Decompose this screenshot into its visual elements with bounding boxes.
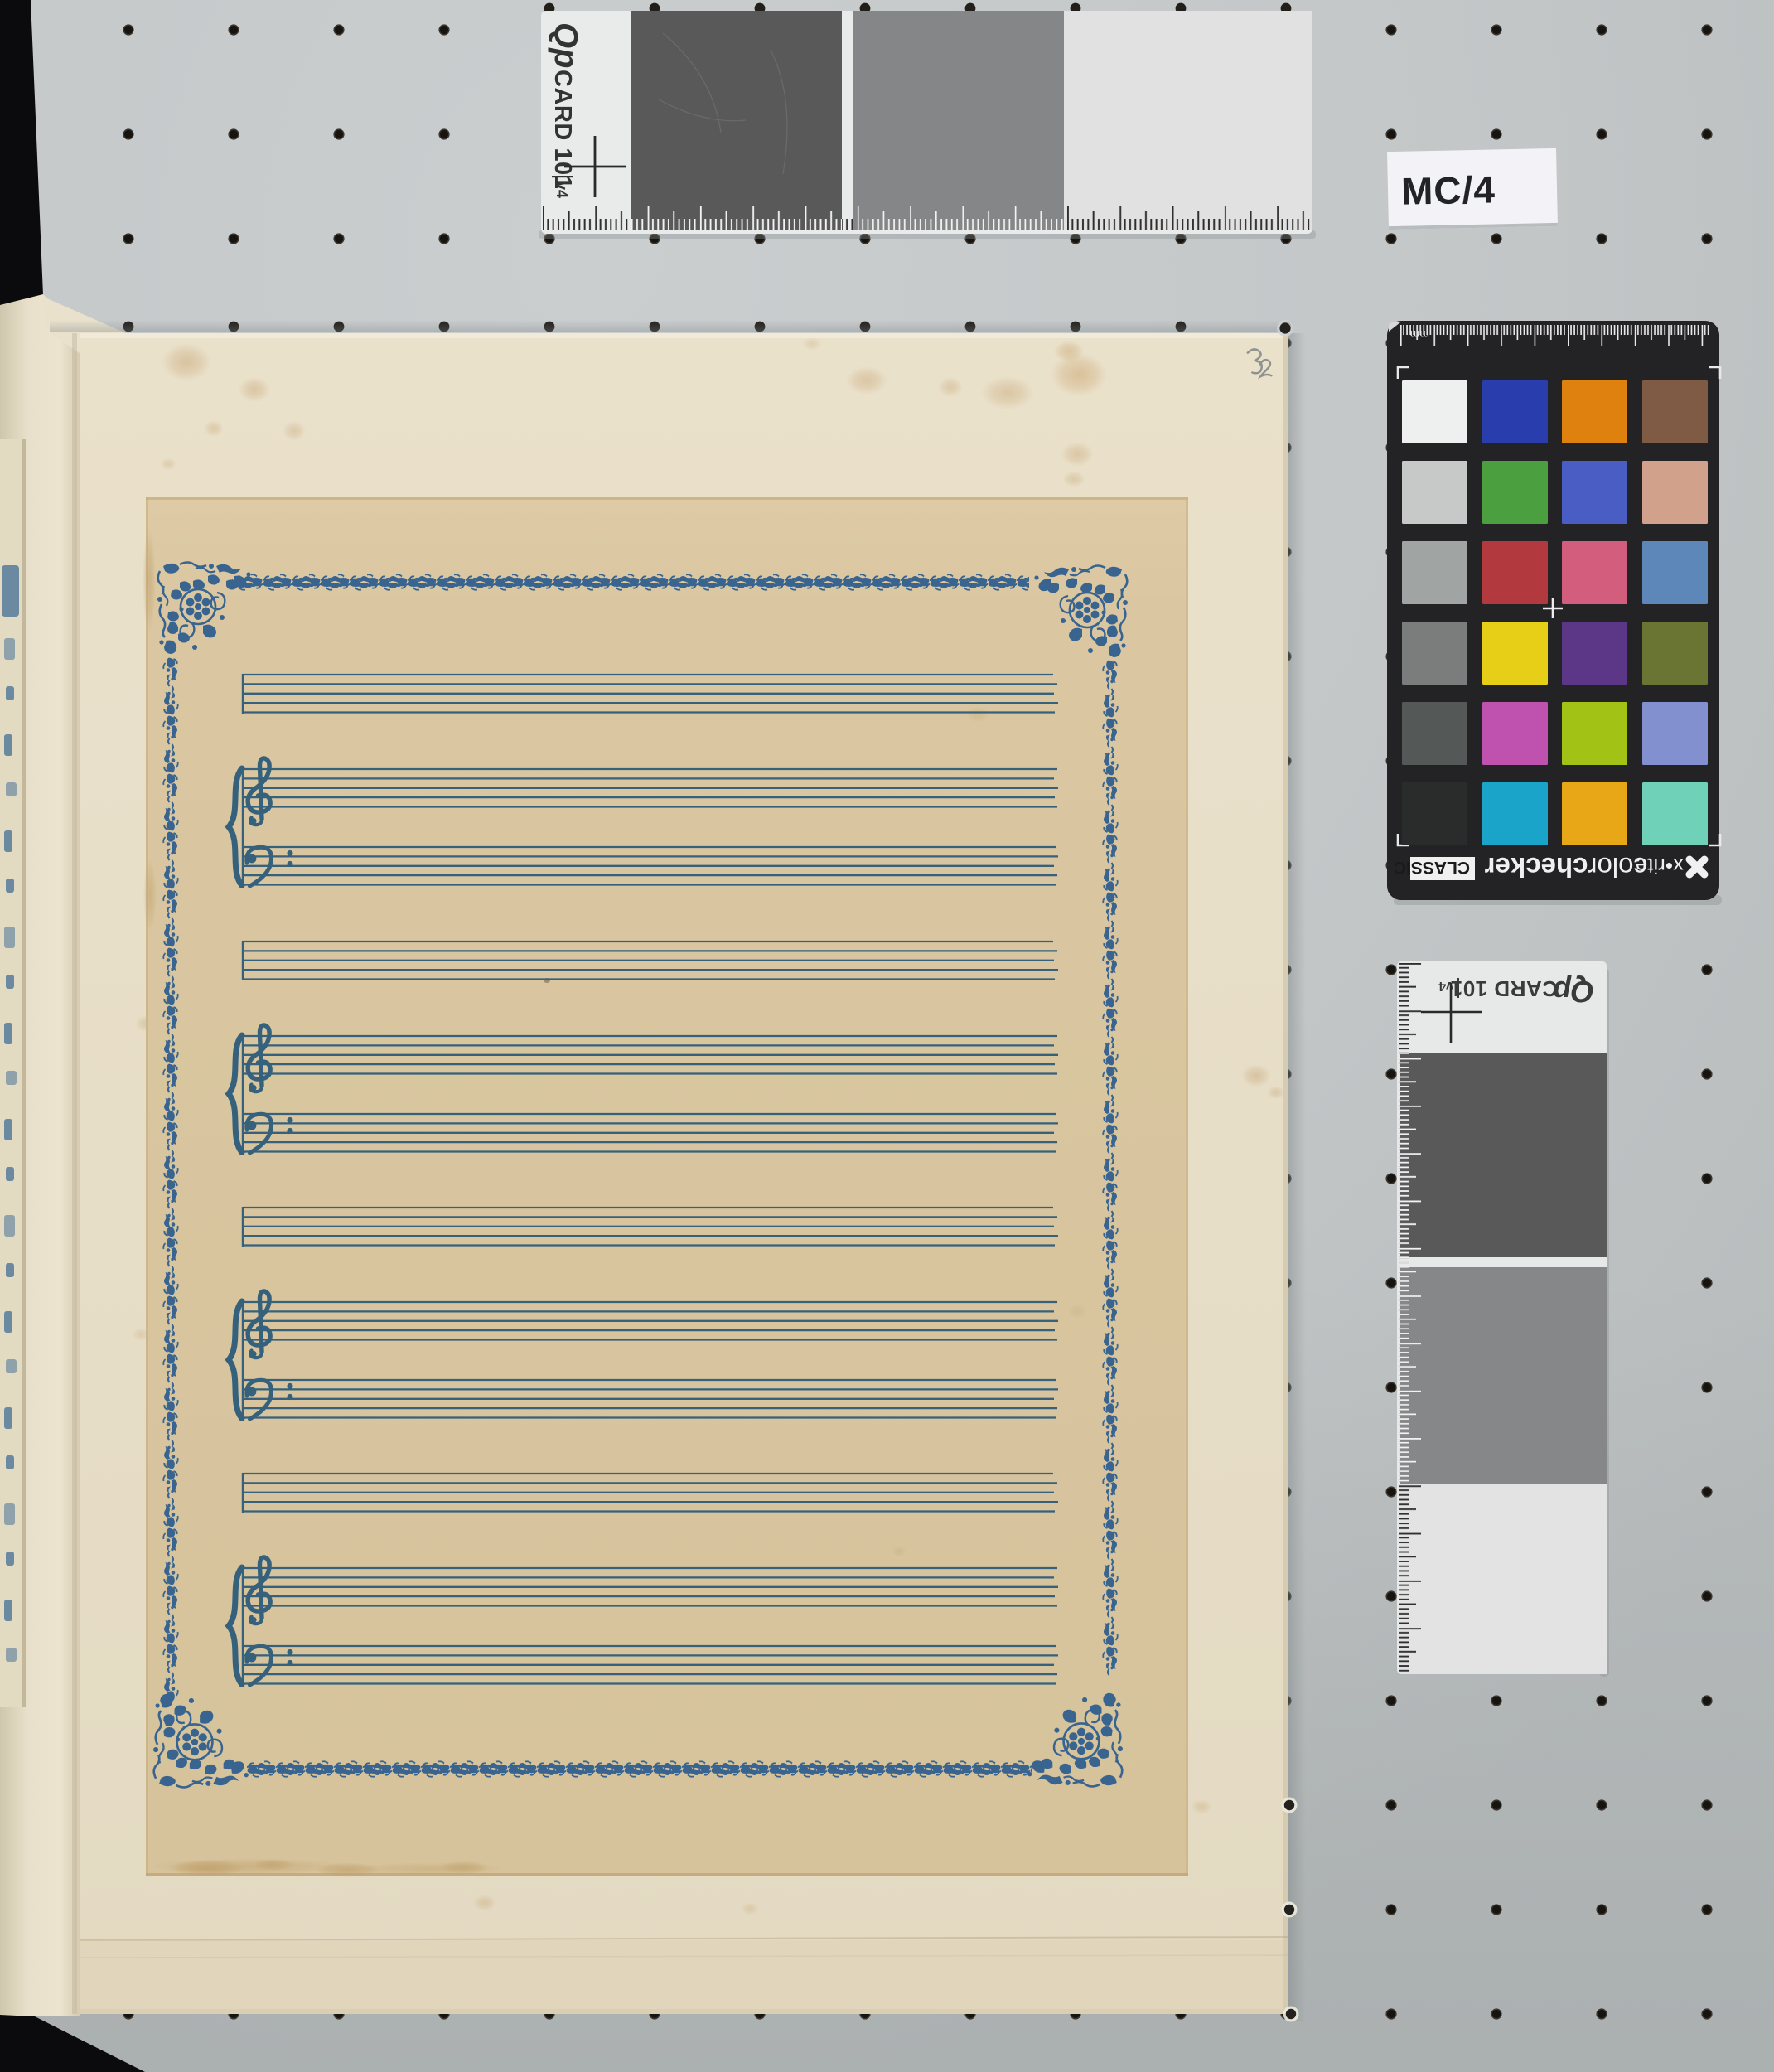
svg-text:x•rite: x•rite — [1636, 854, 1684, 879]
svg-text:v4: v4 — [553, 182, 570, 198]
svg-text:CLASSIC: CLASSIC — [1394, 858, 1470, 877]
svg-text:MC/4: MC/4 — [1400, 167, 1496, 212]
svg-text:CARD 101: CARD 101 — [1450, 976, 1558, 1001]
svg-text:colorchecker: colorchecker — [1485, 852, 1647, 883]
svg-text:Qp: Qp — [1553, 975, 1594, 1009]
svg-text:mm: mm — [1410, 328, 1429, 341]
svg-text:Qp: Qp — [548, 22, 584, 69]
svg-text:CARD 101: CARD 101 — [549, 70, 576, 189]
